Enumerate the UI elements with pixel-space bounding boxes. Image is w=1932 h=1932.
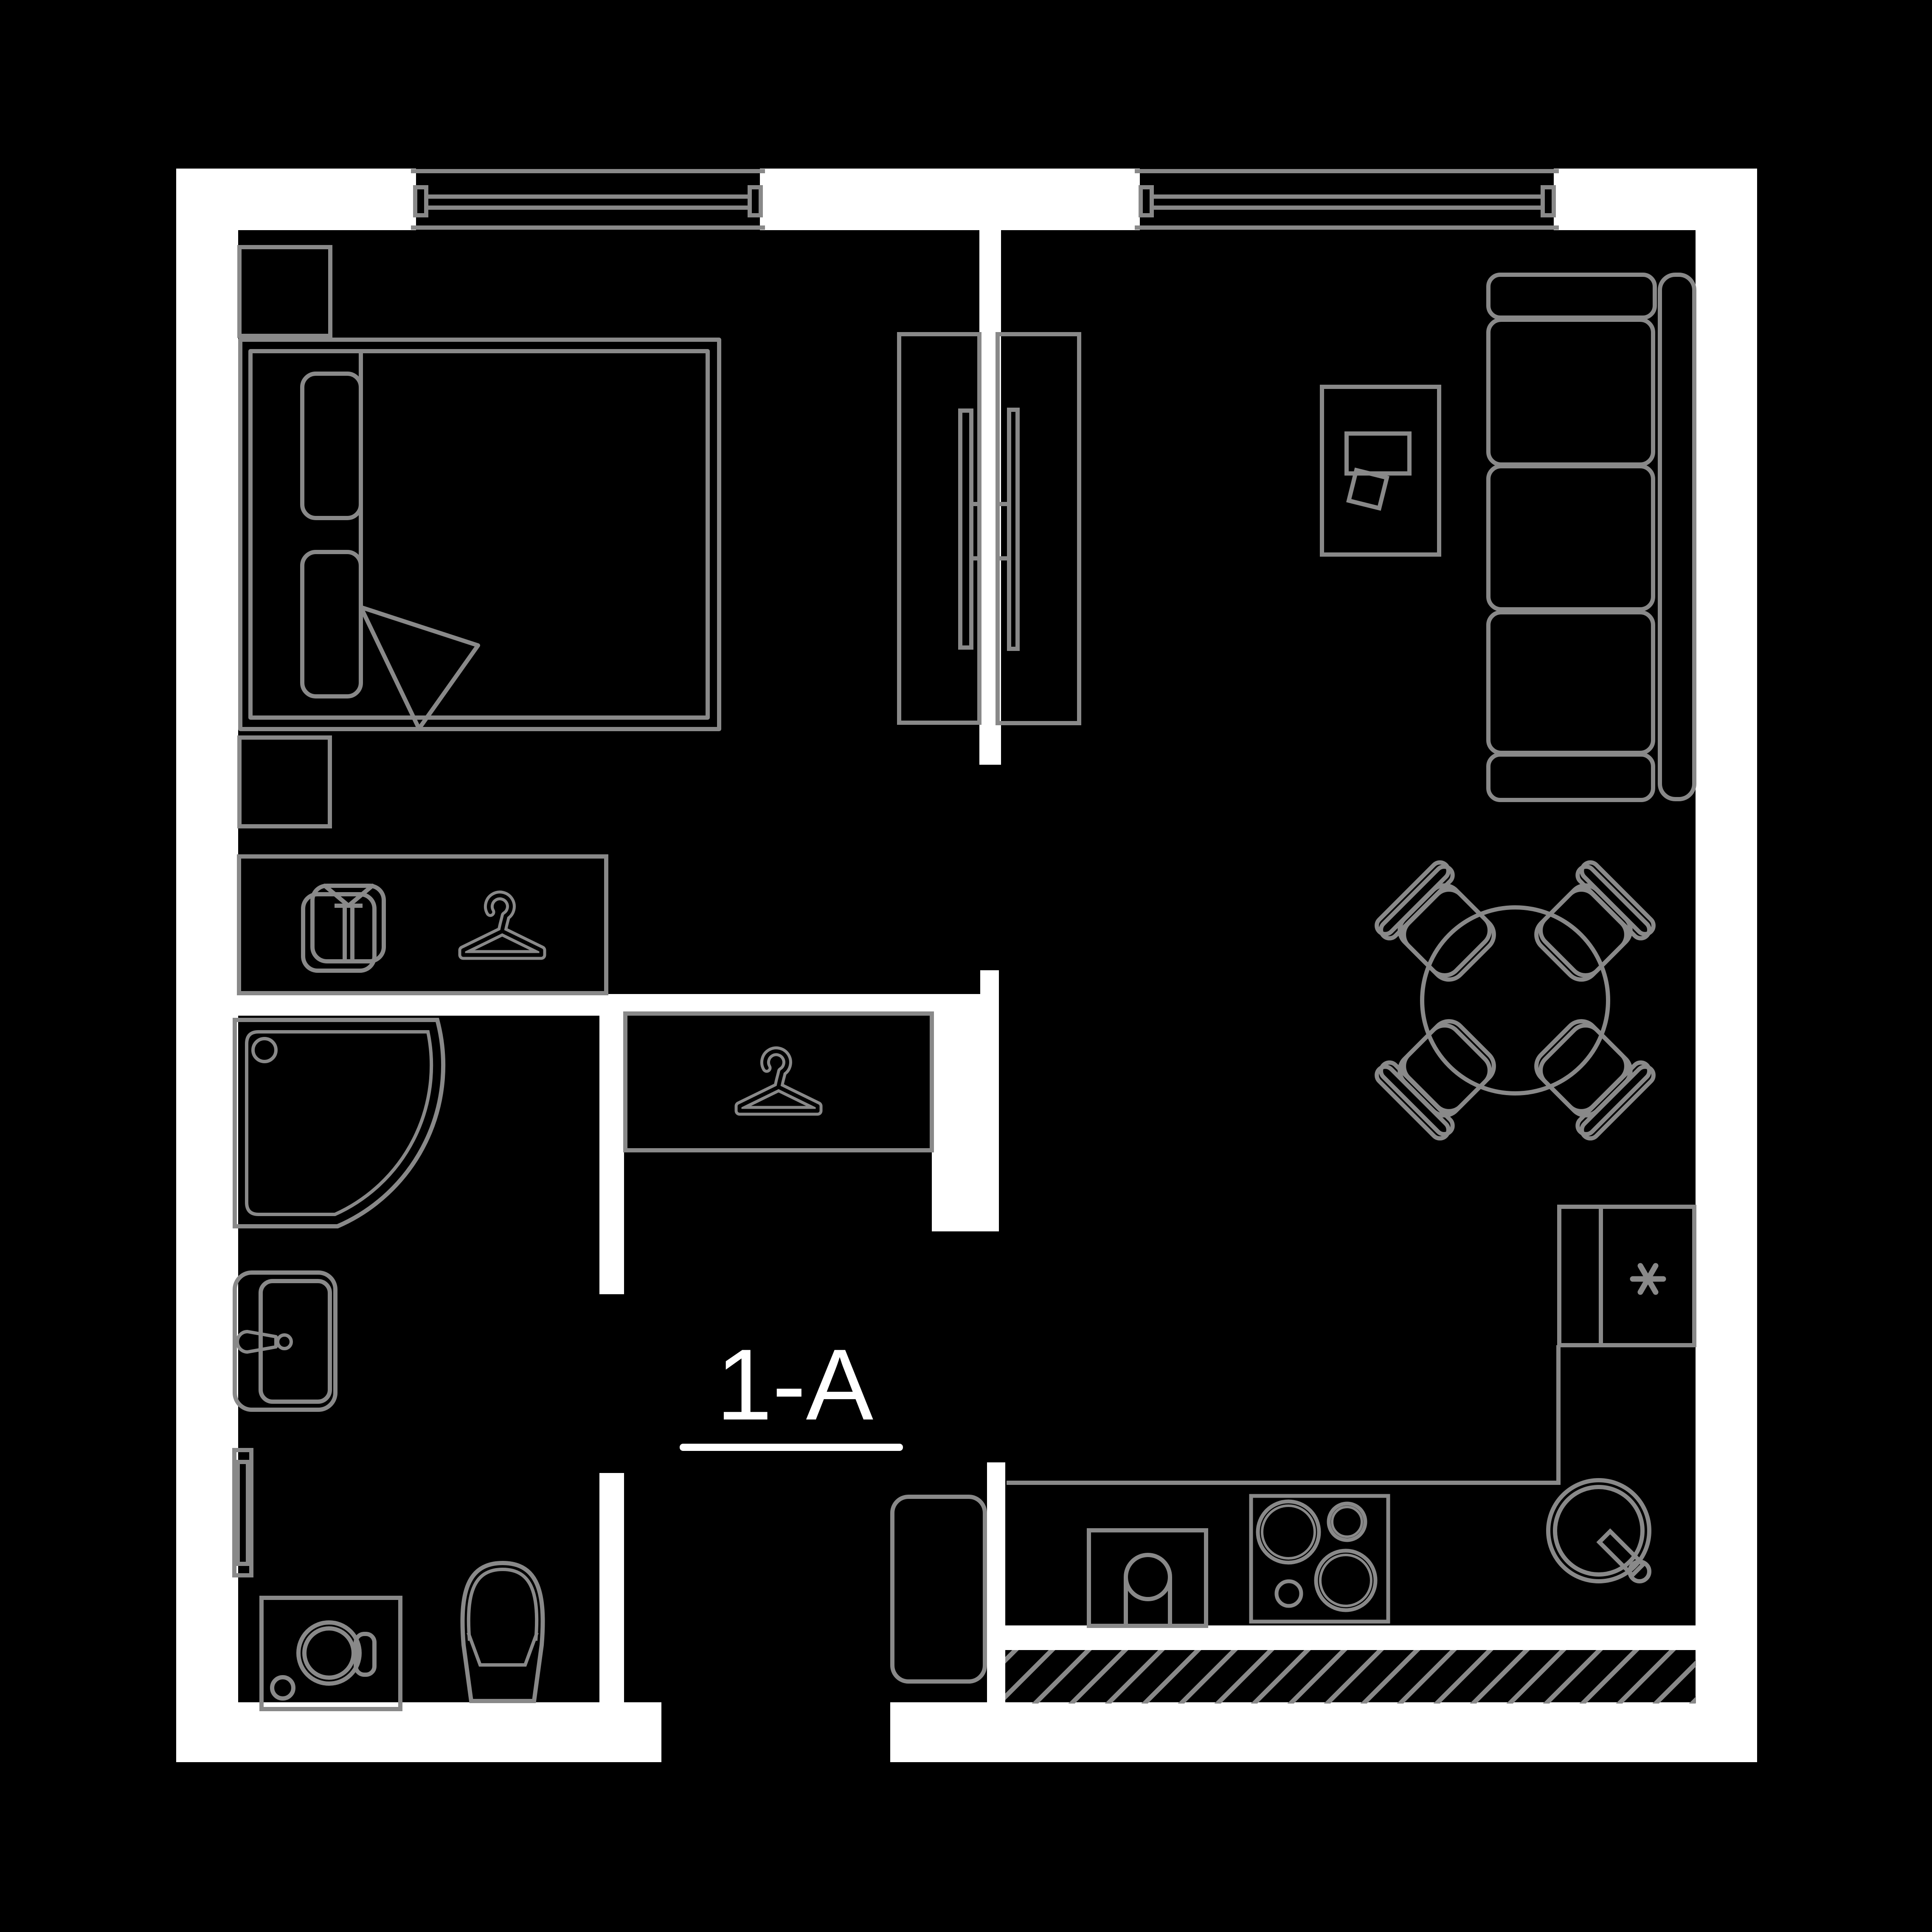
- svg-text:1-A: 1-A: [716, 1329, 874, 1441]
